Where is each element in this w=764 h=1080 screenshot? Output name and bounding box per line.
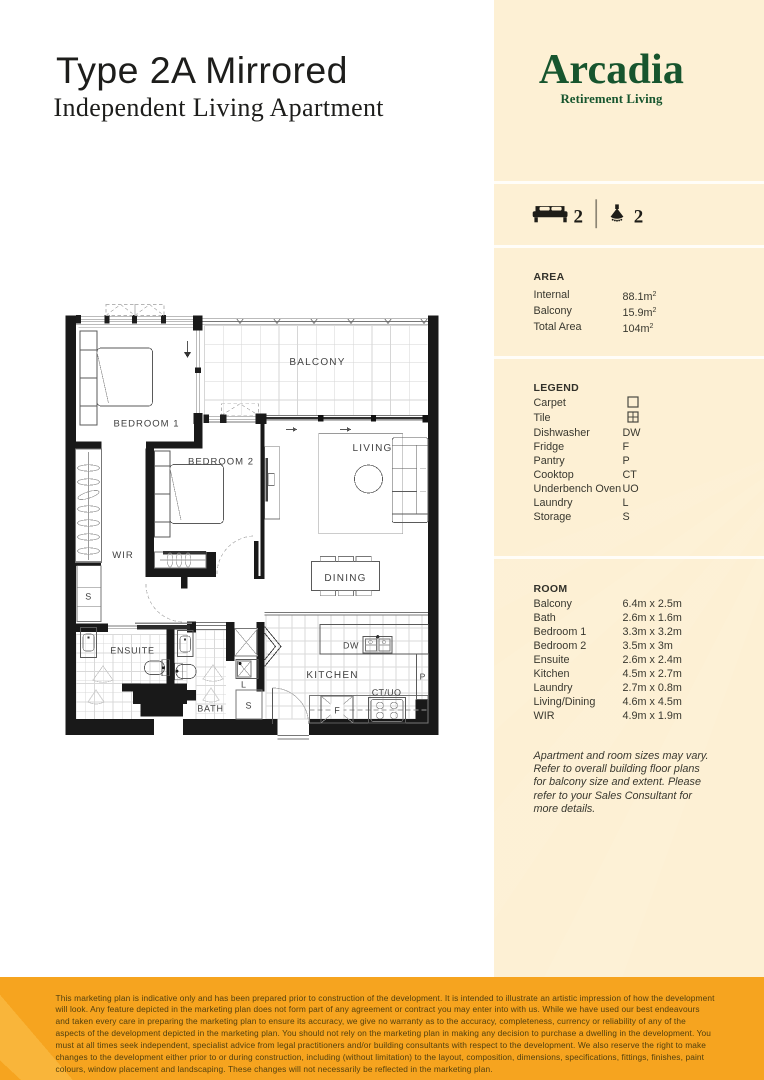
svg-text:BALCONY: BALCONY	[289, 357, 345, 368]
svg-text:DW: DW	[343, 641, 359, 651]
svg-text:S: S	[245, 701, 251, 711]
svg-text:BEDROOM 1: BEDROOM 1	[113, 419, 179, 430]
svg-text:DINING: DINING	[324, 573, 366, 584]
svg-text:BEDROOM 2: BEDROOM 2	[188, 457, 254, 468]
svg-text:CT/UO: CT/UO	[372, 688, 402, 698]
svg-text:L: L	[241, 680, 246, 690]
svg-text:ENSUITE: ENSUITE	[110, 646, 155, 656]
svg-text:P: P	[420, 672, 426, 682]
svg-text:F: F	[334, 706, 340, 716]
svg-text:KITCHEN: KITCHEN	[306, 670, 358, 681]
svg-text:BATH: BATH	[197, 704, 224, 714]
svg-text:LIVING: LIVING	[353, 443, 393, 454]
svg-text:WIR: WIR	[112, 550, 133, 561]
svg-text:S: S	[85, 592, 91, 602]
